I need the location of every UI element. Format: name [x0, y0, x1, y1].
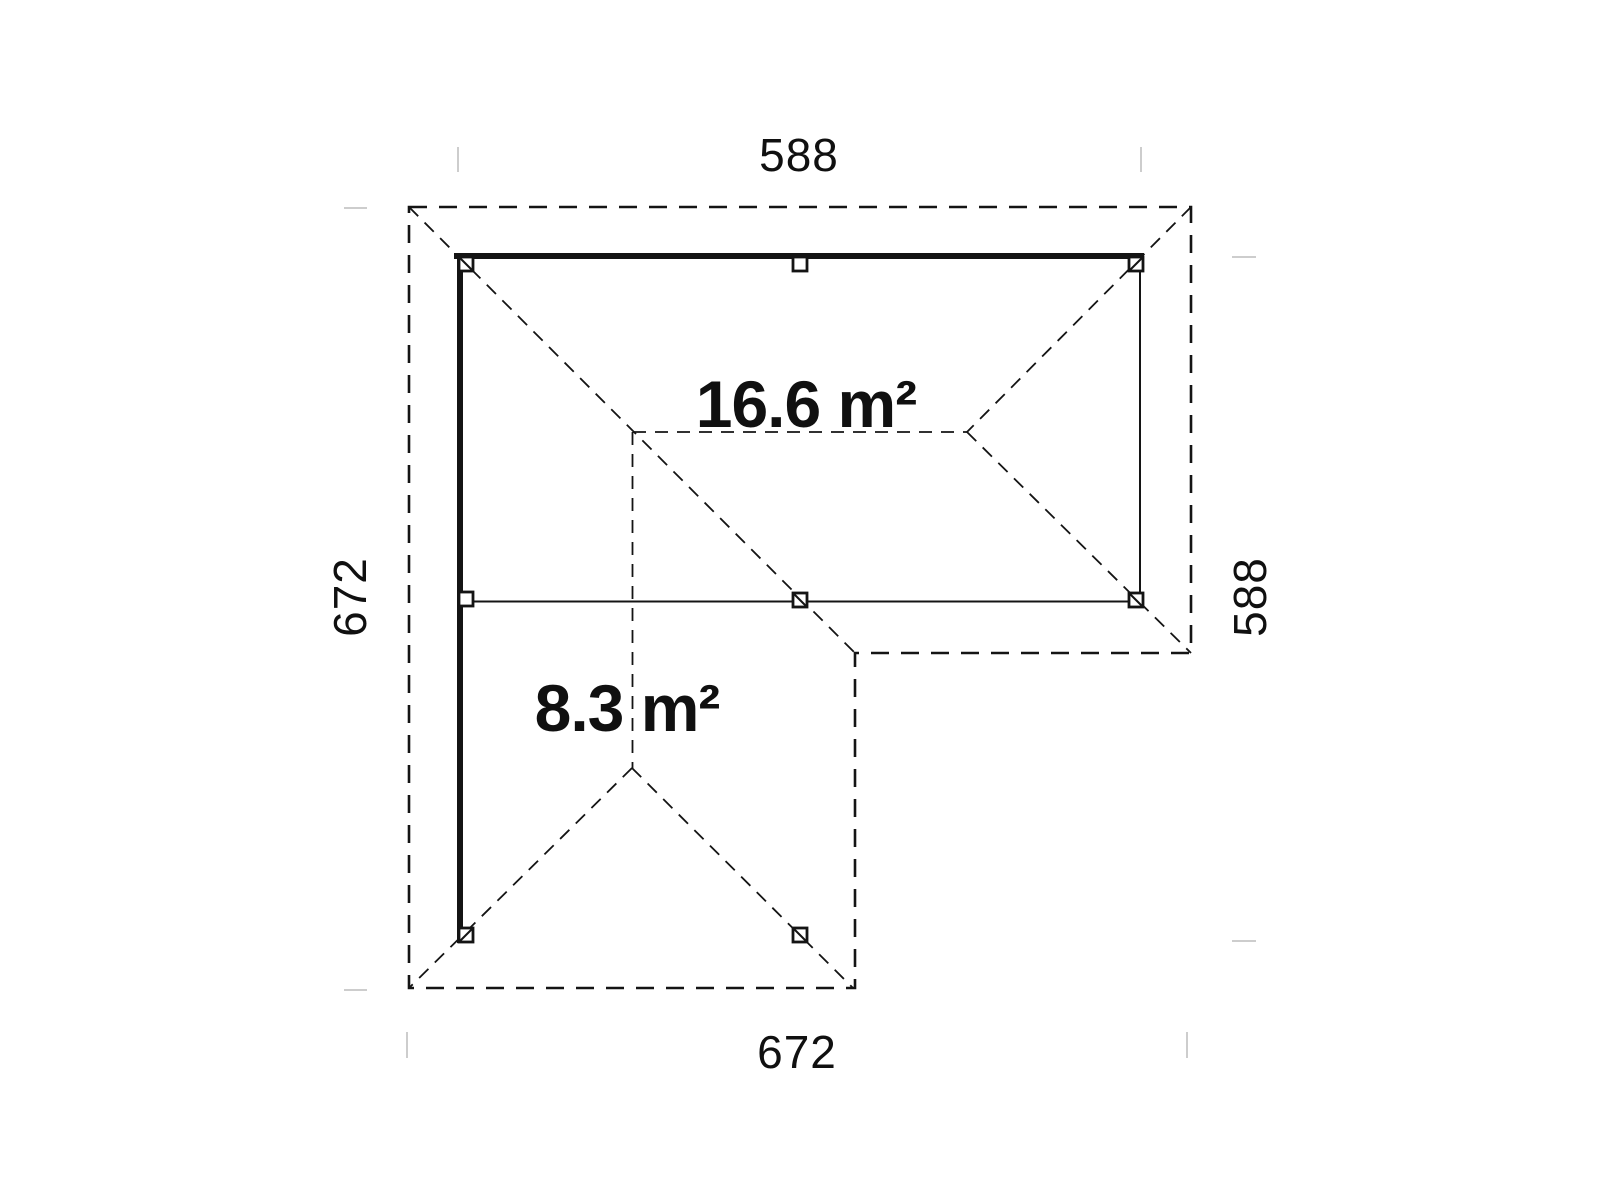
area-label-main-roof: 16.6 m²	[696, 366, 916, 442]
dimension-top-label: 588	[759, 128, 839, 182]
dimension-right-label: 588	[1223, 557, 1277, 637]
hip-line-side-left	[409, 768, 632, 988]
hip-line-top-right	[967, 207, 1191, 432]
post-marker	[793, 257, 807, 271]
post-marker	[459, 592, 473, 606]
plan-canvas: 588 672 588 672 16.6 m² 8.3 m²	[0, 0, 1600, 1199]
dimension-left-label: 672	[323, 557, 377, 637]
area-label-side-roof: 8.3 m²	[535, 670, 720, 746]
posts	[459, 257, 1143, 942]
hip-line-bottom-right	[967, 432, 1191, 653]
hip-line-side-right	[632, 768, 853, 988]
dimension-bottom-label: 672	[757, 1025, 837, 1079]
